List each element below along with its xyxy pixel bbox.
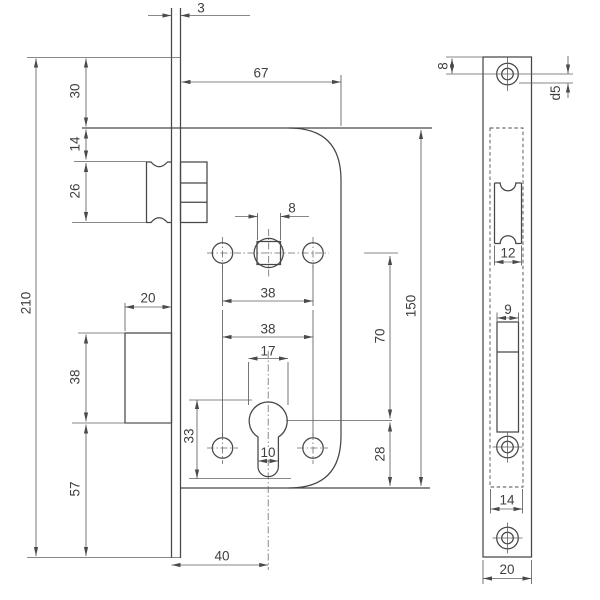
dim-plate-height-210: 210 (19, 59, 36, 557)
dim-label: 150 (404, 295, 419, 318)
dim-label: 38 (68, 369, 83, 384)
dim-screw-hole-d5: d5 (519, 56, 573, 101)
cylinder-group (207, 351, 392, 570)
deadbolt (125, 333, 172, 423)
dim-latch-cutout-12: 12 (495, 246, 522, 266)
dim-case-width-14: 14 (491, 489, 523, 514)
dim-label: 26 (68, 183, 83, 198)
extension-lines-left (27, 58, 180, 558)
dim-bolt-cutout-9: 9 (497, 302, 519, 321)
dim-faceplate-thickness-3: 3 (148, 1, 250, 16)
dim-plate-width-20: 20 (483, 560, 532, 584)
dim-label: 40 (214, 549, 229, 564)
dim-label: 70 (373, 328, 388, 343)
dim-label: 33 (182, 428, 197, 443)
latch-cutout (495, 183, 522, 244)
body-right-edge (289, 128, 341, 488)
middle-screw-hole (493, 432, 523, 463)
latch-tail (181, 162, 208, 223)
side-view: 8 d5 12 9 (436, 56, 573, 584)
dim-spindle-square-8: 8 (235, 201, 309, 240)
front-view: 210 30 14 26 38 57 3 67 20 (19, 1, 432, 570)
dim-label: 20 (499, 562, 514, 577)
mortise-lock-drawing: 210 30 14 26 38 57 3 67 20 (0, 0, 600, 600)
dim-upper-holes-38: 38 (223, 265, 314, 306)
dim-cylinder-profile-33: 33 (182, 400, 291, 479)
dim-backset-40: 40 (172, 549, 269, 565)
dim-deadbolt-width-20: 20 (125, 291, 172, 331)
dim-label: 57 (68, 481, 83, 496)
bottom-screw-hole (493, 523, 523, 554)
dim-lower-holes-38: 38 (223, 310, 314, 437)
dim-label: 20 (140, 291, 155, 306)
dim-label: d5 (548, 85, 563, 100)
dim-body-height-150: 150 (404, 130, 421, 486)
dim-label: 67 (253, 66, 268, 81)
dim-label: 28 (373, 446, 388, 461)
technical-drawing-canvas: 210 30 14 26 38 57 3 67 20 (0, 0, 600, 600)
dim-label: 14 (68, 136, 83, 152)
dim-label: 14 (499, 493, 515, 508)
bolt-cutout (497, 322, 519, 432)
dim-label: 9 (504, 302, 512, 317)
dim-cylinder-to-bottom-28: 28 (373, 423, 390, 487)
dim-label: 8 (288, 201, 296, 216)
dim-label: 30 (68, 83, 83, 98)
latch-bolt (147, 162, 208, 223)
lock-body-outline (82, 128, 432, 488)
faceplate-edge (172, 8, 181, 558)
dim-slot-width-10: 10 (258, 445, 278, 461)
dim-label: 17 (260, 344, 275, 359)
spindle-group (207, 229, 329, 279)
dim-chain-left: 30 14 26 38 57 (68, 59, 86, 557)
dim-top-hole-offset-8: 8 (436, 57, 483, 74)
dim-label: 10 (260, 445, 275, 460)
dim-label: 210 (19, 292, 34, 315)
latch-head (147, 162, 172, 223)
dim-spindle-to-cylinder-70: 70 (364, 253, 398, 419)
dim-label: 38 (260, 286, 275, 301)
dim-label: 3 (197, 1, 205, 16)
dim-label: 38 (260, 322, 275, 337)
dim-body-width-67: 67 (182, 66, 342, 126)
dim-label: 12 (500, 246, 515, 261)
dim-label: 8 (436, 62, 451, 70)
